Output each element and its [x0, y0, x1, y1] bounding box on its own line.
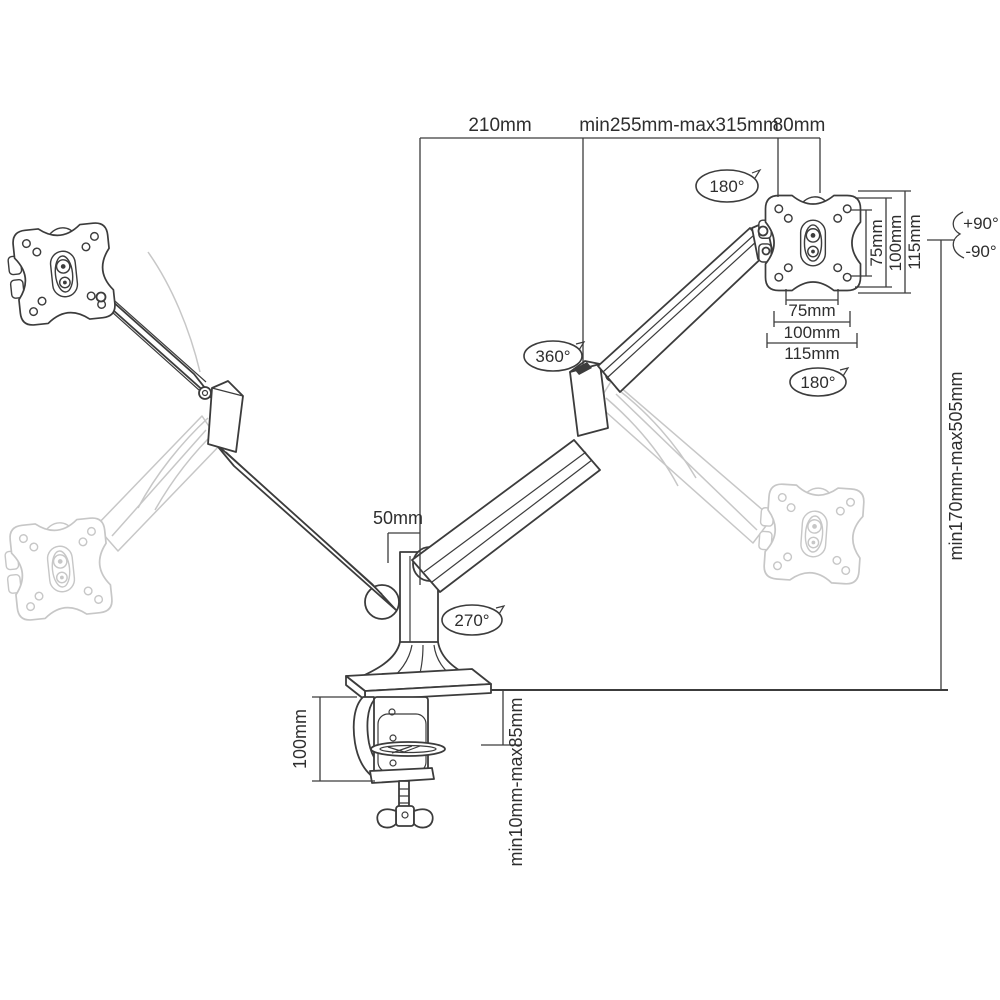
rotation-label-plate: 180°	[800, 373, 835, 392]
left-plate-hinge-screw	[97, 293, 106, 302]
ghost-right-arm-line	[616, 394, 757, 530]
right-lower-arm-line	[424, 452, 586, 572]
left-arm-base-joint	[365, 585, 399, 619]
clamp-body	[374, 697, 428, 778]
dim-label-vesa-v100: 100mm	[886, 215, 905, 272]
dim-label-height-range: min170mm-max505mm	[946, 371, 966, 560]
clamp-shelf	[371, 742, 445, 756]
clamp-knob-right-wing	[414, 809, 433, 827]
dim-label-vesa-v75: 75mm	[867, 219, 886, 266]
left-lower-arm	[214, 442, 396, 610]
dim-label-vesa-h100: 100mm	[784, 323, 841, 342]
right-vesa-plate	[759, 196, 861, 291]
right-elbow-joint	[570, 364, 608, 436]
dim-label-vesa-h115: 115mm	[784, 344, 839, 363]
dim-label-clamp-range: min10mm-max85mm	[506, 697, 526, 866]
dim-label-clamp-height: 100mm	[290, 709, 310, 769]
right-plate-hinge-screw	[759, 227, 768, 236]
dim-label-arm-extension: min255mm-max315mm	[579, 115, 779, 136]
dim-label-pole-offset: 50mm	[373, 508, 423, 528]
rotation-label-arm-swivel: 180°	[709, 177, 744, 196]
ghost-left-arm-line	[112, 430, 206, 536]
right-lower-arm-line	[432, 460, 592, 582]
rotation-label-elbow: 360°	[535, 347, 570, 366]
clamp-knob-center	[396, 806, 414, 826]
ghost-left-vesa-plate	[2, 517, 113, 622]
dim-label-vesa-v115: 115mm	[905, 214, 924, 269]
technical-diagram: 210mm min255mm-max315mm 80mm 50mm min170…	[0, 0, 1000, 1000]
dim-label-arm-offset: 210mm	[468, 115, 531, 136]
dim-label-plate-depth: 80mm	[773, 115, 826, 136]
rotation-label-tilt-down: -90°	[965, 242, 996, 261]
left-vesa-plate	[5, 222, 116, 327]
right-upper-arm-line	[608, 240, 758, 377]
monitor-arm-drawing: 210mm min255mm-max315mm 80mm 50mm min170…	[0, 0, 1000, 1000]
rotation-label-base: 270°	[454, 611, 489, 630]
clamp-knob-left-wing	[377, 809, 396, 827]
right-upper-arm-line	[603, 235, 754, 372]
dim-label-vesa-h75: 75mm	[788, 301, 835, 320]
rotation-label-tilt-up: +90°	[963, 214, 999, 233]
left-elbow-screw	[199, 387, 211, 399]
ghost-arc	[606, 398, 678, 486]
left-lower-arm-line	[226, 452, 382, 594]
ghost-right-vesa-plate	[757, 483, 865, 585]
right-plate-hinge-screw	[763, 248, 770, 255]
